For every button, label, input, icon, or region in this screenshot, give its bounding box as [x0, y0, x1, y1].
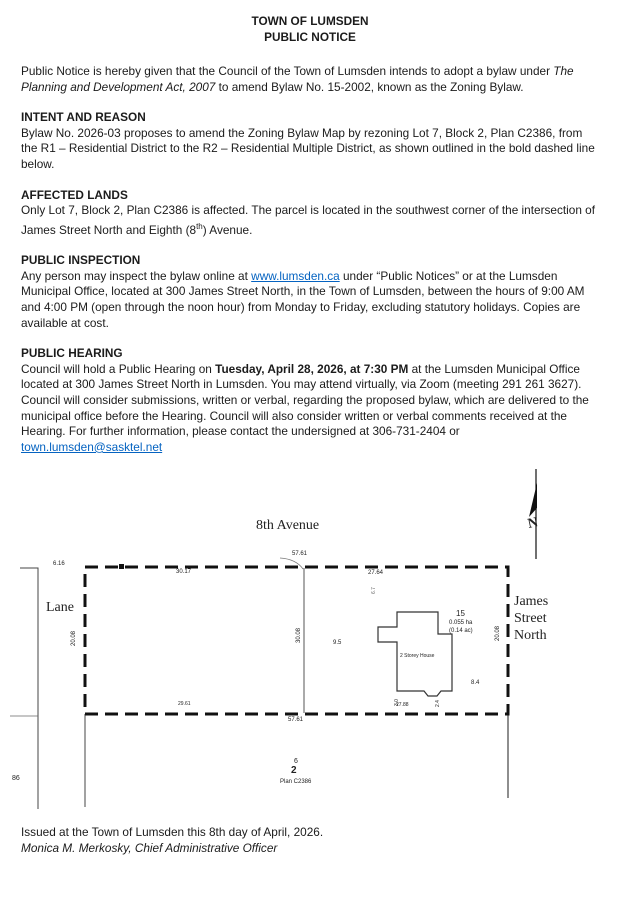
- dim-bottom-left: 29.61: [178, 701, 191, 707]
- street-label-8th-avenue: 8th Avenue: [256, 518, 319, 534]
- area-hectares: 0.055 ha: [449, 620, 472, 626]
- hearing-body-pre: Council will hold a Public Hearing on: [21, 362, 215, 376]
- public-notice-page: TOWN OF LUMSDEN PUBLIC NOTICE Public Not…: [0, 0, 620, 455]
- dim-house-left: 9.5: [333, 640, 341, 646]
- inspection-body-pre: Any person may inspect the bylaw online …: [21, 269, 251, 283]
- street-label-north: North: [514, 628, 547, 644]
- dim-top-right: 27.64: [368, 570, 383, 576]
- affected-heading: AFFECTED LANDS: [21, 188, 599, 204]
- hearing-datetime: Tuesday, April 28, 2026, at 7:30 PM: [215, 362, 408, 376]
- area-acres: (0.14 ac): [449, 628, 473, 634]
- section-intent: INTENT AND REASON Bylaw No. 2026-03 prop…: [21, 110, 599, 172]
- title-town: TOWN OF LUMSDEN: [21, 14, 599, 30]
- dim-bottom-total: 57.61: [288, 717, 303, 723]
- hearing-heading: PUBLIC HEARING: [21, 346, 599, 362]
- issuance-footer: Issued at the Town of Lumsden this 8th d…: [0, 825, 620, 856]
- house-label: 2 Storey House: [400, 653, 434, 659]
- dim-8-4: 8.4: [471, 680, 479, 686]
- affected-body: Only Lot 7, Block 2, Plan C2386 is affec…: [21, 203, 599, 238]
- affected-body-pre: Only Lot 7, Block 2, Plan C2386 is affec…: [21, 203, 595, 237]
- signature-line: Monica M. Merkosky, Chief Administrative…: [21, 841, 599, 857]
- inspection-heading: PUBLIC INSPECTION: [21, 253, 599, 269]
- dim-2-4: 2.4: [435, 700, 441, 707]
- plan-number-label: Plan C2386: [280, 779, 311, 785]
- title-notice: PUBLIC NOTICE: [21, 30, 599, 46]
- lumsden-website-link[interactable]: www.lumsden.ca: [251, 269, 340, 283]
- dim-top-total: 57.61: [292, 551, 307, 557]
- intro-post: to amend Bylaw No. 15-2002, known as the…: [215, 80, 523, 94]
- lot-below-label: 6: [294, 758, 298, 765]
- dim-mid-side: 30.08: [296, 628, 302, 643]
- dim-small-right: 6.7: [371, 587, 377, 594]
- street-label-lane: Lane: [46, 600, 74, 616]
- intent-body: Bylaw No. 2026-03 proposes to amend the …: [21, 126, 599, 173]
- section-affected-lands: AFFECTED LANDS Only Lot 7, Block 2, Plan…: [21, 188, 599, 239]
- dim-top-left: 30.17: [176, 569, 191, 575]
- ordinal-superscript: th: [196, 222, 203, 231]
- edge-mark-label: 86: [12, 775, 20, 782]
- lot-number-label: 15: [456, 609, 465, 618]
- intent-heading: INTENT AND REASON: [21, 110, 599, 126]
- dim-left-side: 20.08: [71, 631, 77, 646]
- section-public-inspection: PUBLIC INSPECTION Any person may inspect…: [21, 253, 599, 331]
- section-public-hearing: PUBLIC HEARING Council will hold a Publi…: [21, 346, 599, 455]
- hearing-body: Council will hold a Public Hearing on Tu…: [21, 362, 599, 456]
- intro-paragraph: Public Notice is hereby given that the C…: [21, 64, 599, 95]
- dim-lane-offset: 6.16: [53, 561, 65, 567]
- street-label-james: James: [514, 594, 548, 610]
- inspection-body: Any person may inspect the bylaw online …: [21, 269, 599, 331]
- document-title: TOWN OF LUMSDEN PUBLIC NOTICE: [21, 14, 599, 45]
- dim-27-88: 27.88: [396, 702, 409, 708]
- issued-line: Issued at the Town of Lumsden this 8th d…: [21, 825, 599, 841]
- zoning-survey-map: 8th Avenue Lane James Street North N 57.…: [0, 461, 620, 816]
- intro-pre: Public Notice is hereby given that the C…: [21, 64, 553, 78]
- dim-right-side: 20.08: [495, 626, 501, 641]
- block-number-label: 2: [291, 765, 297, 776]
- town-email-link[interactable]: town.lumsden@sasktel.net: [21, 440, 162, 454]
- affected-body-post: ) Avenue.: [203, 223, 253, 237]
- street-label-street: Street: [514, 611, 547, 627]
